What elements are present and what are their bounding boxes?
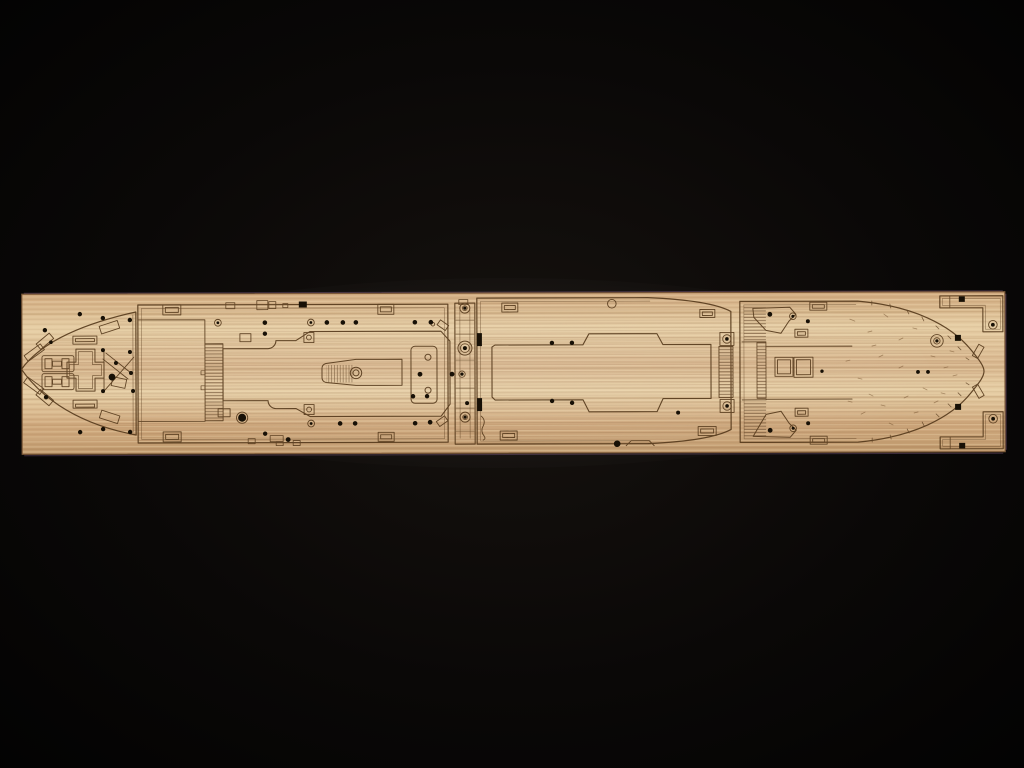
stern-comb-strip (757, 342, 766, 398)
well-deck-comb-edge (719, 346, 733, 397)
main-boat-deck-piece (138, 300, 450, 446)
photo-canvas (0, 0, 1024, 768)
photograph (0, 0, 1024, 768)
wood-sheet (21, 277, 1006, 470)
well-deck-outline (477, 297, 731, 444)
etched-deck-pieces (21, 296, 1003, 452)
ladder-comb-strip (205, 344, 223, 421)
stern-margin-comb-top (744, 305, 766, 341)
forward-well-deck-piece (477, 297, 734, 446)
connector-strip-piece (455, 300, 475, 445)
